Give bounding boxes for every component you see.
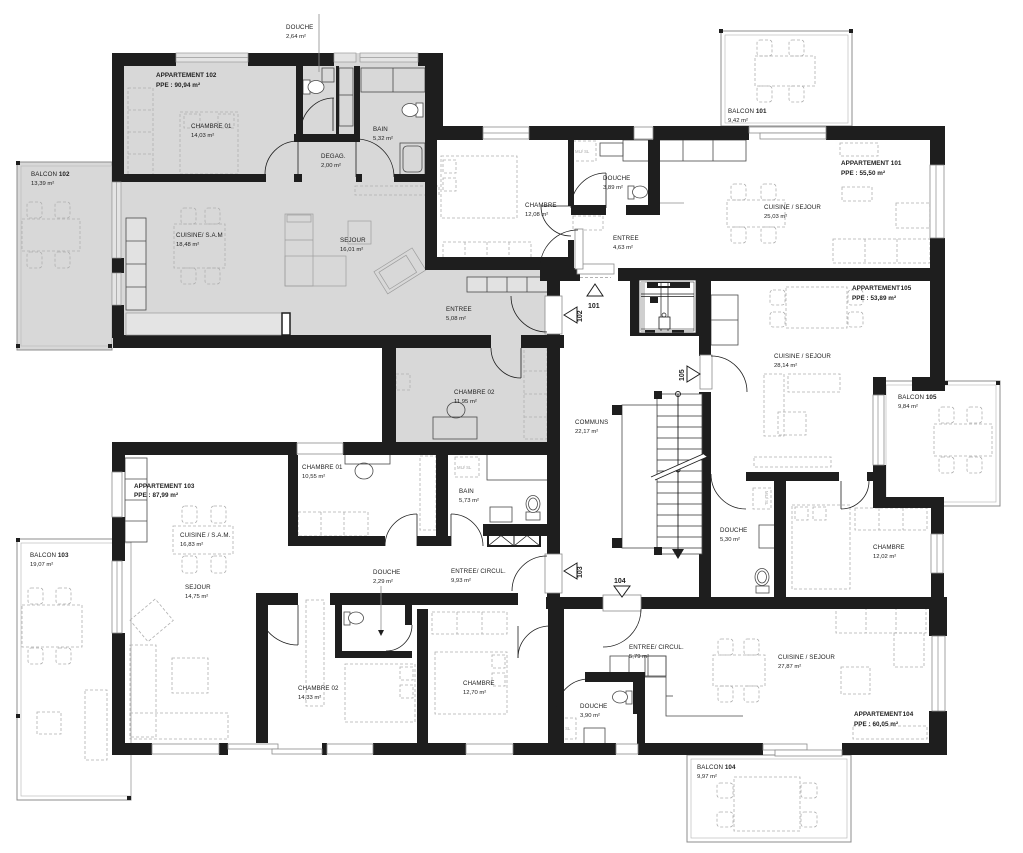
svg-text:11,95 m²: 11,95 m² bbox=[454, 399, 477, 405]
svg-text:APPARTEMENT 101: APPARTEMENT 101 bbox=[841, 160, 902, 167]
svg-text:DOUCHE: DOUCHE bbox=[373, 569, 400, 576]
svg-text:MU/ SL: MU/ SL bbox=[764, 491, 769, 506]
svg-text:9,42 m²: 9,42 m² bbox=[728, 118, 748, 124]
svg-text:BAIN: BAIN bbox=[373, 126, 388, 133]
svg-text:CUISINE / SEJOUR: CUISINE / SEJOUR bbox=[764, 204, 821, 211]
svg-text:ENTREE: ENTREE bbox=[446, 306, 472, 313]
svg-text:25,03 m²: 25,03 m² bbox=[764, 214, 787, 220]
svg-text:CHAMBRE: CHAMBRE bbox=[463, 680, 495, 687]
svg-text:APPARTEMENT 105: APPARTEMENT 105 bbox=[852, 285, 912, 292]
svg-text:104: 104 bbox=[614, 578, 626, 585]
svg-text:4,63 m²: 4,63 m² bbox=[613, 245, 633, 251]
svg-text:5,73 m²: 5,73 m² bbox=[459, 498, 479, 504]
svg-text:DOUCHE: DOUCHE bbox=[286, 24, 313, 31]
svg-text:PPE : 87,99 m²: PPE : 87,99 m² bbox=[134, 492, 178, 499]
svg-text:10,55 m²: 10,55 m² bbox=[302, 474, 325, 480]
svg-text:14,33 m²: 14,33 m² bbox=[298, 695, 321, 701]
svg-text:BALCON 104: BALCON 104 bbox=[697, 764, 736, 771]
svg-text:CUISINE/ S.A.M: CUISINE/ S.A.M bbox=[176, 232, 223, 239]
svg-text:BALCON 105: BALCON 105 bbox=[898, 394, 937, 401]
svg-text:16,83 m²: 16,83 m² bbox=[180, 542, 203, 548]
svg-text:COMMUNS: COMMUNS bbox=[575, 419, 608, 426]
svg-text:CHAMBRE 02: CHAMBRE 02 bbox=[454, 389, 495, 396]
svg-text:DOUCHE: DOUCHE bbox=[720, 527, 747, 534]
svg-text:CUISINE / SEJOUR: CUISINE / SEJOUR bbox=[778, 654, 835, 661]
svg-text:CHAMBRE 01: CHAMBRE 01 bbox=[191, 123, 232, 130]
svg-text:13,39 m²: 13,39 m² bbox=[31, 181, 54, 187]
svg-text:CHAMBRE: CHAMBRE bbox=[873, 544, 905, 551]
svg-text:PPE : 53,89 m²: PPE : 53,89 m² bbox=[852, 295, 896, 302]
svg-text:28,14 m²: 28,14 m² bbox=[774, 363, 797, 369]
svg-text:5,32 m²: 5,32 m² bbox=[373, 136, 393, 142]
svg-text:SEJOUR: SEJOUR bbox=[340, 237, 366, 244]
svg-text:CHAMBRE 01: CHAMBRE 01 bbox=[302, 464, 343, 471]
svg-text:PPE : 90,94 m²: PPE : 90,94 m² bbox=[156, 82, 200, 89]
svg-text:DOUCHE: DOUCHE bbox=[603, 175, 630, 182]
svg-text:DEGAG.: DEGAG. bbox=[321, 153, 346, 160]
svg-text:101: 101 bbox=[588, 303, 600, 310]
svg-text:BALCON 101: BALCON 101 bbox=[728, 108, 767, 115]
svg-text:19,07 m²: 19,07 m² bbox=[30, 562, 53, 568]
svg-text:102: 102 bbox=[577, 310, 584, 322]
svg-text:APPARTEMENT 103: APPARTEMENT 103 bbox=[134, 483, 195, 490]
svg-text:CUISINE / SEJOUR: CUISINE / SEJOUR bbox=[774, 353, 831, 360]
svg-text:DOUCHE: DOUCHE bbox=[580, 703, 607, 710]
svg-text:5,79 m²: 5,79 m² bbox=[629, 654, 649, 660]
svg-text:2,64 m²: 2,64 m² bbox=[286, 34, 306, 40]
svg-text:9,93 m²: 9,93 m² bbox=[451, 578, 471, 584]
svg-text:12,08 m²: 12,08 m² bbox=[525, 212, 548, 218]
svg-text:14,75 m²: 14,75 m² bbox=[185, 594, 208, 600]
svg-text:14,03 m²: 14,03 m² bbox=[191, 133, 214, 139]
svg-text:3,89 m²: 3,89 m² bbox=[603, 185, 623, 191]
svg-text:PPE : 55,50 m²: PPE : 55,50 m² bbox=[841, 170, 885, 177]
svg-text:ENTREE: ENTREE bbox=[613, 235, 639, 242]
svg-text:22,17 m²: 22,17 m² bbox=[575, 429, 598, 435]
svg-text:ENTREE/ CIRCUL.: ENTREE/ CIRCUL. bbox=[629, 644, 684, 651]
svg-text:9,97 m²: 9,97 m² bbox=[697, 774, 717, 780]
svg-text:27,87 m²: 27,87 m² bbox=[778, 664, 801, 670]
svg-text:APPARTEMENT 104: APPARTEMENT 104 bbox=[854, 711, 914, 718]
svg-text:5,30 m²: 5,30 m² bbox=[720, 537, 740, 543]
svg-text:2,00 m²: 2,00 m² bbox=[321, 163, 341, 169]
svg-text:CHAMBRE 02: CHAMBRE 02 bbox=[298, 685, 339, 692]
svg-text:SEJOUR: SEJOUR bbox=[185, 584, 211, 591]
svg-text:2,29 m²: 2,29 m² bbox=[373, 579, 393, 585]
svg-text:12,02 m²: 12,02 m² bbox=[873, 554, 896, 560]
svg-text:103: 103 bbox=[577, 566, 584, 578]
svg-text:MU/ SL: MU/ SL bbox=[457, 465, 472, 470]
svg-text:CUISINE / S.A.M.: CUISINE / S.A.M. bbox=[180, 532, 231, 539]
svg-text:18,48 m²: 18,48 m² bbox=[176, 242, 199, 248]
svg-text:BAIN: BAIN bbox=[459, 488, 474, 495]
svg-text:5,08 m²: 5,08 m² bbox=[446, 316, 466, 322]
svg-text:APPARTEMENT 102: APPARTEMENT 102 bbox=[156, 72, 217, 79]
svg-text:ENTREE/ CIRCUL.: ENTREE/ CIRCUL. bbox=[451, 568, 506, 575]
svg-text:9,84 m²: 9,84 m² bbox=[898, 404, 918, 410]
svg-text:12,70 m²: 12,70 m² bbox=[463, 690, 486, 696]
svg-text:3,90 m²: 3,90 m² bbox=[580, 713, 600, 719]
svg-text:PPE : 60,05 m²: PPE : 60,05 m² bbox=[854, 721, 898, 728]
svg-text:105: 105 bbox=[679, 369, 686, 381]
svg-text:BALCON 103: BALCON 103 bbox=[30, 552, 69, 559]
svg-text:16,01 m²: 16,01 m² bbox=[340, 247, 363, 253]
svg-text:BALCON 102: BALCON 102 bbox=[31, 171, 70, 178]
svg-text:CHAMBRE: CHAMBRE bbox=[525, 202, 557, 209]
svg-text:MU/ SL: MU/ SL bbox=[575, 149, 590, 154]
